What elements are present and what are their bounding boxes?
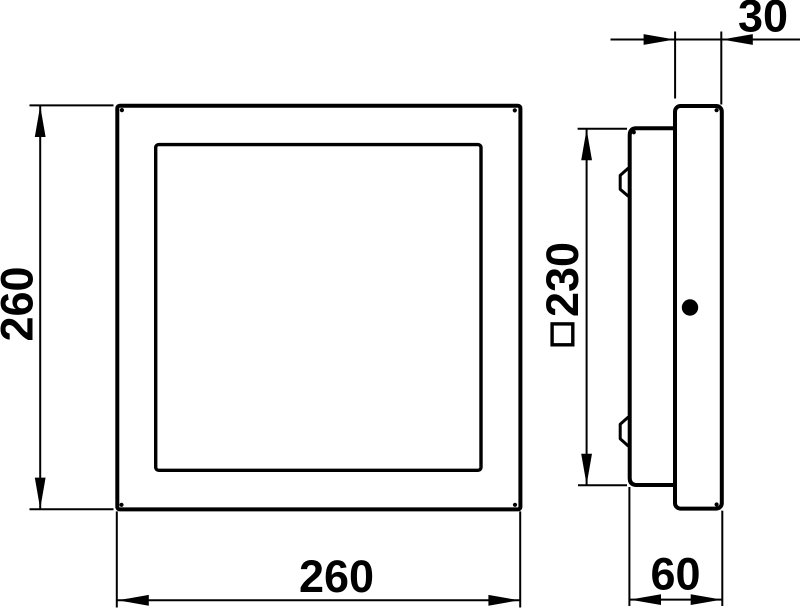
svg-text:260: 260 xyxy=(0,266,43,341)
svg-text:230: 230 xyxy=(537,242,588,317)
svg-text:60: 60 xyxy=(650,549,700,600)
svg-text:30: 30 xyxy=(738,0,788,42)
svg-text:260: 260 xyxy=(299,551,374,602)
